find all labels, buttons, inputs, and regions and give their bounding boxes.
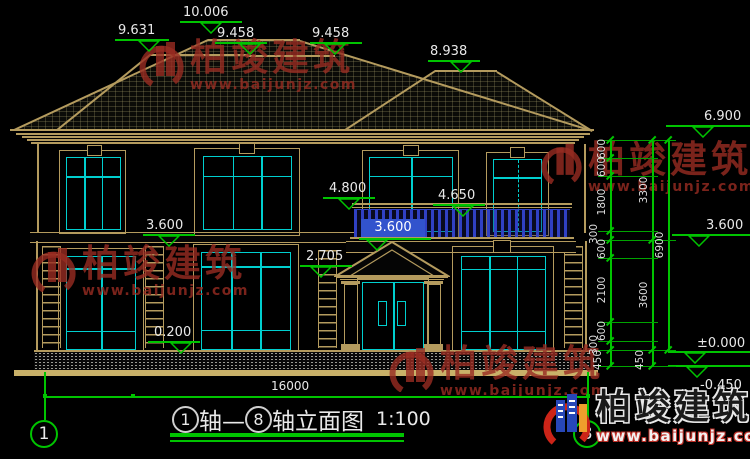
- watermark-brand: 柏竣建筑: [82, 246, 249, 282]
- wall-2f-left-edge: [37, 144, 39, 233]
- elev-3600-selected[interactable]: 3.600: [361, 219, 425, 237]
- watermark-url: www.baijunjz.com: [596, 427, 750, 445]
- elev-4800: 4.800: [329, 181, 366, 196]
- drawing-title: 1 轴— 8 轴立面图 1:100: [172, 402, 431, 436]
- cornice-band-1: [10, 129, 594, 131]
- elev-9458-b: 9.458: [312, 26, 349, 41]
- dim-total-line: [45, 396, 589, 398]
- cornice-band-2: [16, 133, 590, 135]
- elev-left-3600: 3.600: [146, 218, 183, 233]
- dim-label: 450: [592, 350, 604, 370]
- dim-label: 450: [634, 350, 646, 370]
- watermark-url: www.baijunjz.com: [82, 283, 249, 299]
- entry-door: [362, 282, 424, 350]
- porch-column-right: [427, 284, 441, 346]
- elev-9458-a: 9.458: [217, 26, 254, 41]
- elev-0000: ±0.000: [697, 336, 745, 351]
- elev-left-0200: 0.200: [154, 325, 191, 340]
- quoin-right: [564, 246, 583, 348]
- dim-label: 1800: [596, 189, 608, 216]
- door-handle-left: [378, 301, 387, 326]
- elev-2705: 2.705: [306, 249, 343, 264]
- watermark-brand: 柏竣建筑: [440, 346, 607, 382]
- title-underline-thick: [170, 433, 404, 437]
- window-2f-1: [66, 157, 121, 230]
- window-2f-4-keystone: [510, 147, 525, 158]
- dim-label: 3300: [638, 177, 650, 204]
- caption-axis-to: 8: [245, 406, 272, 433]
- watermark-left: 柏竣建筑 www.baijunjz.com: [30, 246, 249, 299]
- window-2f-2: [203, 156, 292, 230]
- caption-tail: 轴立面图: [272, 402, 364, 436]
- cornice-band-3: [22, 136, 584, 138]
- elev-right-3600: 3.600: [706, 218, 743, 233]
- dim-label: 2100: [596, 277, 608, 304]
- caption-scale: 1:100: [376, 408, 431, 430]
- dim-label: 3600: [638, 282, 650, 309]
- window-1f-3: [461, 256, 546, 350]
- elev-10006: 10.006: [183, 5, 229, 20]
- caption-mid: 轴—: [199, 402, 245, 436]
- wall-1f-right-edge: [585, 241, 587, 351]
- balcony-door-keystone: [403, 145, 419, 156]
- baijun-logo-icon: [540, 142, 582, 184]
- elev-6900: 6.900: [704, 109, 741, 124]
- baijun-logo-color-icon: [542, 390, 590, 446]
- baijun-logo-icon: [388, 346, 434, 392]
- watermark-logo-color: 柏竣建筑 www.baijunjz.com: [542, 390, 750, 446]
- title-underline-thin: [170, 440, 404, 442]
- dim-line-3: [668, 140, 670, 350]
- watermark-url: www.baijunjz.com: [190, 77, 357, 93]
- dim-total-label: 16000: [271, 379, 309, 394]
- window-2f-2-keystone: [239, 143, 255, 154]
- elev-9631: 9.631: [118, 23, 155, 38]
- window-2f-1-keystone: [87, 145, 102, 156]
- elev-4650: 4.650: [438, 188, 475, 203]
- window-1f-3-keystone: [493, 240, 511, 253]
- dim-label: 600: [596, 239, 608, 259]
- cad-elevation-canvas: 柏竣建筑 www.baijunjz.com 柏竣建筑 www.baijunjz.…: [0, 0, 750, 459]
- axis-bubble-1: 1: [30, 420, 58, 448]
- elev-8938: 8.938: [430, 44, 467, 59]
- watermark-brand: 柏竣建筑: [596, 390, 750, 426]
- porch-pediment: [334, 240, 450, 278]
- porch-column-left: [344, 284, 358, 346]
- cornice-band-5: [31, 142, 575, 144]
- baijun-logo-icon: [30, 246, 76, 292]
- dim-label: 6900: [654, 232, 666, 259]
- caption-axis-from: 1: [172, 406, 199, 433]
- axis-line-1: [44, 372, 46, 420]
- dim-label: 600: [596, 157, 608, 177]
- door-handle-right: [397, 301, 406, 326]
- cornice-band-4: [27, 139, 579, 141]
